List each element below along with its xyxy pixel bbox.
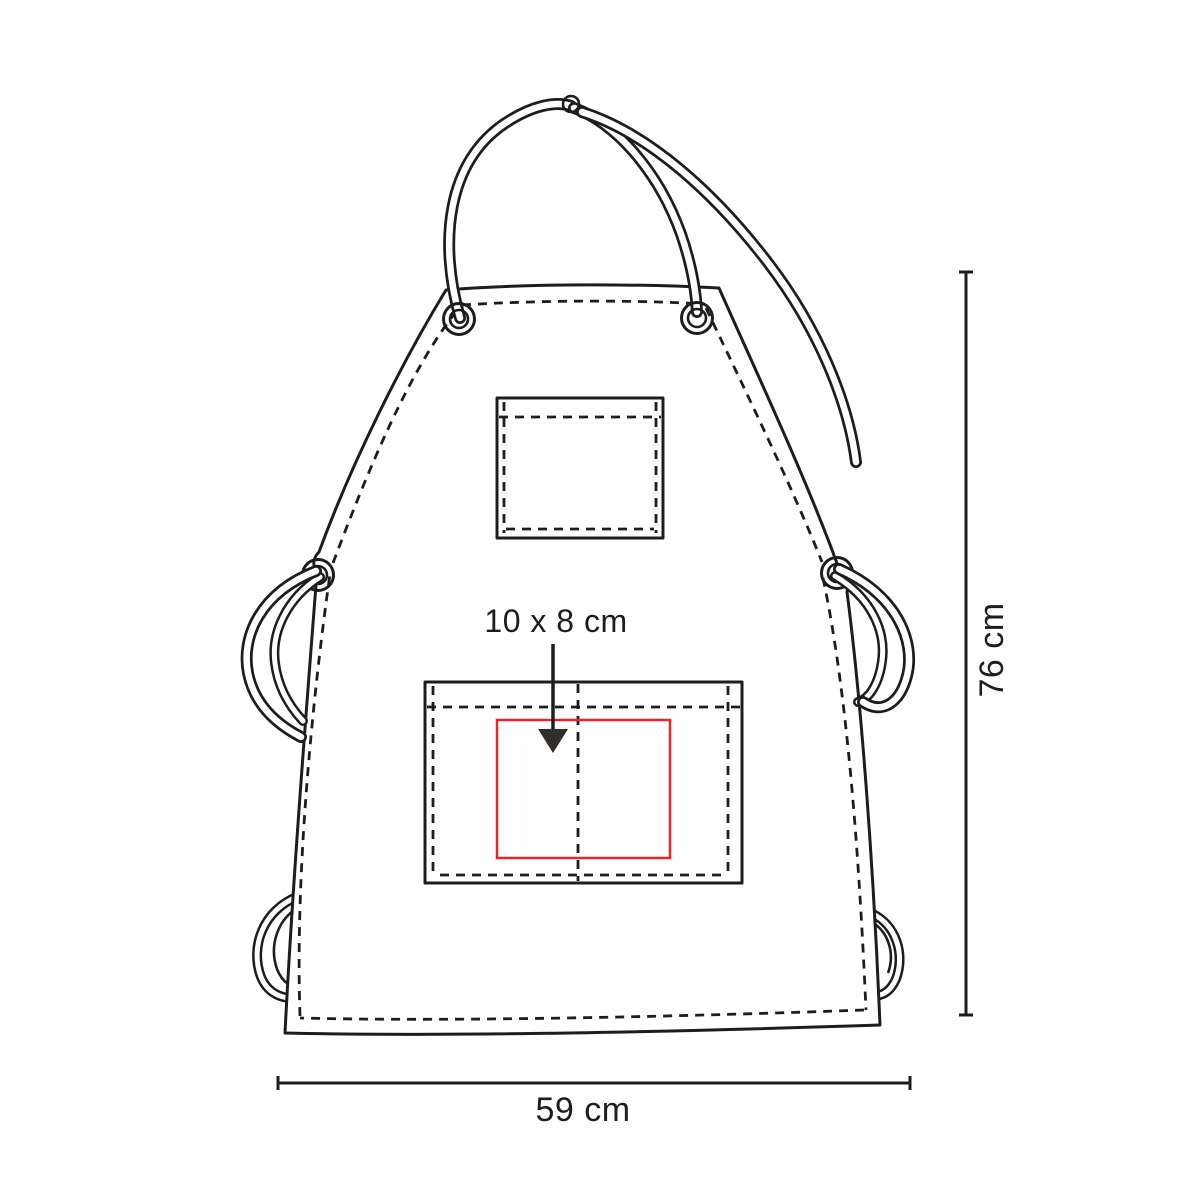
apron-drawing: 10 x 8 cm 59 cm 76 cm xyxy=(247,96,1011,1129)
height-dimension-line xyxy=(959,272,973,1015)
width-dimension-label: 59 cm xyxy=(535,1091,630,1129)
apron-diagram-page: 10 x 8 cm 59 cm 76 cm xyxy=(0,0,1191,1200)
main-pocket-outline xyxy=(425,682,742,883)
main-pocket xyxy=(425,682,742,883)
chest-pocket-outline xyxy=(497,398,663,538)
width-dimension-line xyxy=(278,1076,910,1090)
height-dimension-label: 76 cm xyxy=(973,602,1011,697)
apron-diagram: 10 x 8 cm 59 cm 76 cm xyxy=(0,0,1191,1200)
print-area-label: 10 x 8 cm xyxy=(484,603,627,639)
chest-pocket xyxy=(497,398,663,538)
